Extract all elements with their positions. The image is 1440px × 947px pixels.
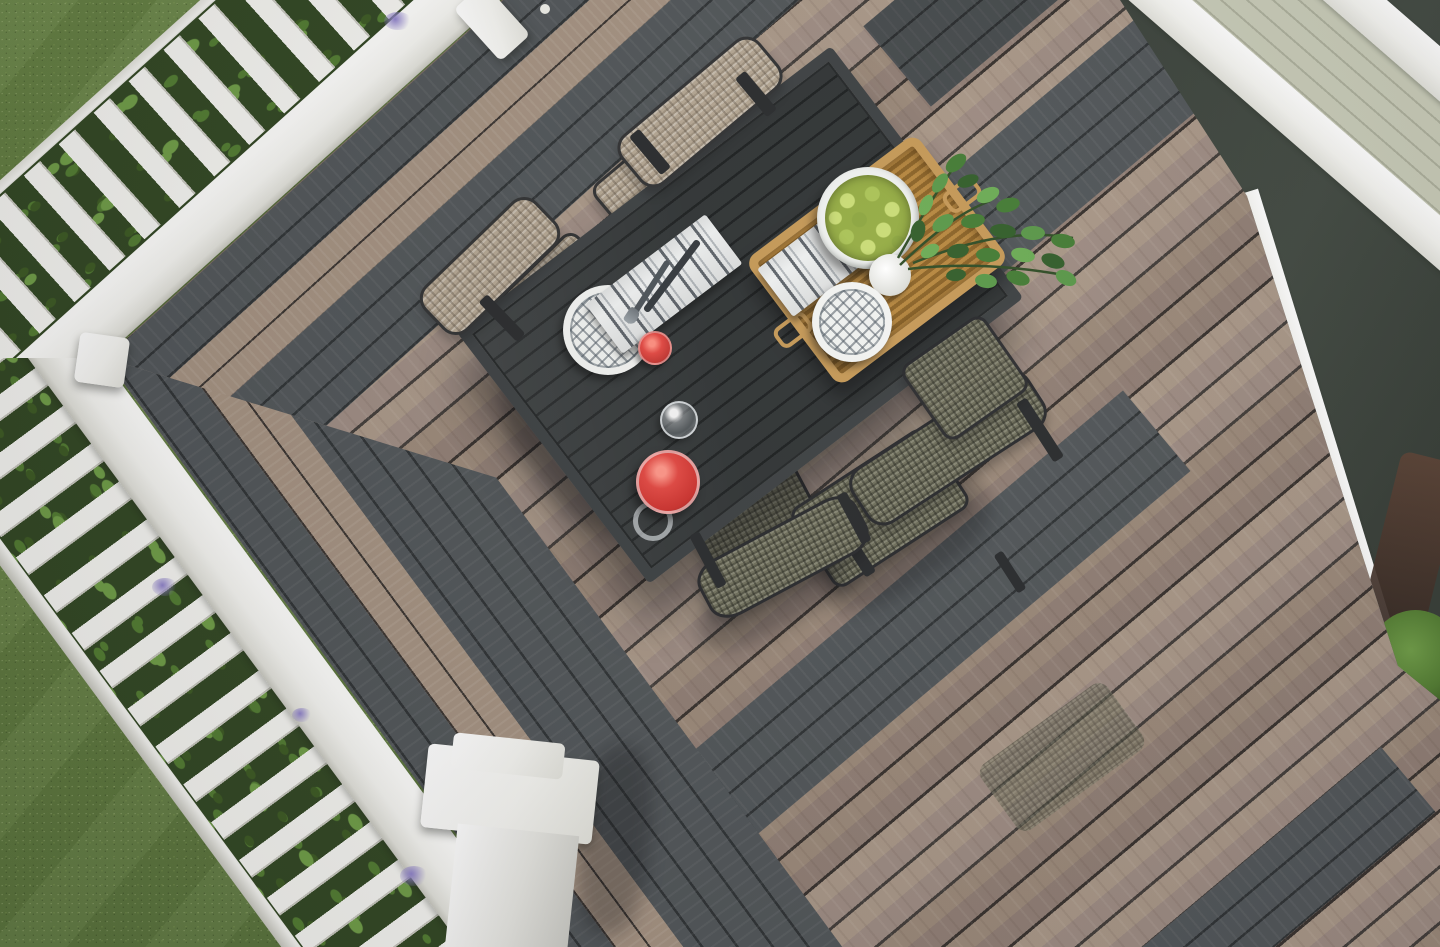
deck-light: [540, 4, 550, 14]
red-pitcher: [636, 450, 700, 514]
plate-on-tray: [812, 282, 892, 362]
purple-flowers: [400, 866, 428, 886]
water-glass: [660, 401, 698, 439]
deck-photo-scene: [0, 0, 1440, 947]
post-body: [445, 823, 579, 947]
potted-plant-foliage: [868, 143, 1083, 323]
corner-post-cap: [74, 332, 130, 388]
purple-flowers: [292, 708, 312, 722]
purple-flowers: [152, 578, 178, 596]
purple-flowers: [384, 12, 412, 30]
red-tumbler: [638, 331, 672, 365]
